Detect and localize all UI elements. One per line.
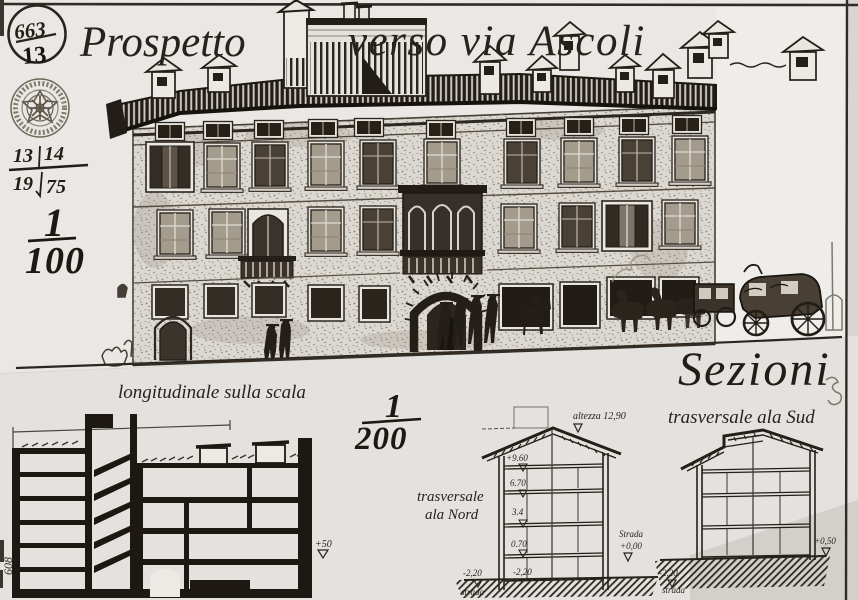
svg-text:100: 100 bbox=[25, 240, 85, 282]
svg-text:strada: strada bbox=[662, 585, 686, 595]
svg-text:0.70: 0.70 bbox=[511, 539, 527, 549]
svg-text:-2,20: -2,20 bbox=[659, 568, 678, 578]
svg-text:75: 75 bbox=[46, 176, 66, 198]
svg-text:14: 14 bbox=[44, 143, 64, 165]
svg-text:trasversale: trasversale bbox=[417, 489, 484, 505]
svg-text:-2,20: -2,20 bbox=[513, 567, 532, 577]
svg-text:verso via Ascoli: verso via Ascoli bbox=[348, 18, 646, 65]
svg-text:Strada: Strada bbox=[619, 529, 644, 539]
svg-text:13: 13 bbox=[13, 145, 33, 167]
svg-text:200: 200 bbox=[354, 421, 408, 457]
svg-text:ala Nord: ala Nord bbox=[425, 507, 479, 523]
svg-text:altezza 12,90: altezza 12,90 bbox=[573, 411, 626, 422]
svg-text:663: 663 bbox=[13, 17, 47, 44]
svg-text:strada: strada bbox=[461, 587, 485, 597]
svg-text:-2,20: -2,20 bbox=[463, 568, 482, 578]
svg-text:longitudinale sulla scala: longitudinale sulla scala bbox=[118, 382, 306, 403]
svg-text:13: 13 bbox=[21, 42, 47, 70]
svg-text:+50: +50 bbox=[315, 539, 332, 550]
svg-text:608: 608 bbox=[1, 557, 15, 575]
svg-text:3.4: 3.4 bbox=[511, 507, 524, 517]
svg-text:+9.60: +9.60 bbox=[506, 453, 528, 463]
svg-text:Sezioni: Sezioni bbox=[678, 343, 831, 396]
svg-text:+0,50: +0,50 bbox=[814, 536, 836, 546]
svg-text:6.70: 6.70 bbox=[510, 478, 526, 488]
svg-text:+0,00: +0,00 bbox=[620, 541, 642, 551]
svg-text:trasversale ala Sud: trasversale ala Sud bbox=[668, 407, 815, 428]
svg-text:Prospetto: Prospetto bbox=[79, 19, 246, 66]
svg-text:19: 19 bbox=[13, 173, 33, 195]
